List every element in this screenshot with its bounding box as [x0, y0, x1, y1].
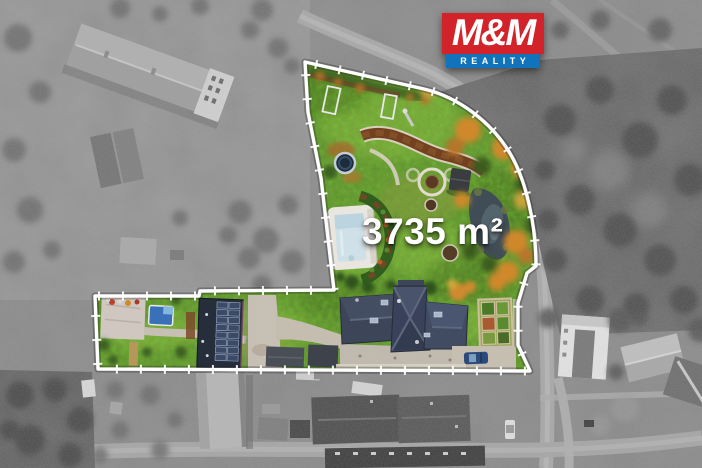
- aerial-photo: M&M REALITY 3735 m²: [0, 0, 702, 468]
- logo-subtitle-box: REALITY: [446, 54, 540, 68]
- logo-title-box: M&M: [442, 13, 544, 54]
- wood-beam: [129, 342, 139, 366]
- solar-roof-building: [197, 298, 243, 368]
- logo-title: M&M: [452, 14, 534, 51]
- round-bed-1: [425, 199, 437, 211]
- agency-logo: M&M REALITY: [442, 13, 544, 68]
- kids-pool: [148, 305, 173, 325]
- logo-subtitle: REALITY: [456, 57, 531, 66]
- garden-beds: [478, 298, 513, 347]
- car: [464, 352, 488, 365]
- plot-area-label: 3735 m²: [362, 211, 503, 253]
- brown-bed: [186, 312, 195, 339]
- aerial-scene: [0, 0, 702, 468]
